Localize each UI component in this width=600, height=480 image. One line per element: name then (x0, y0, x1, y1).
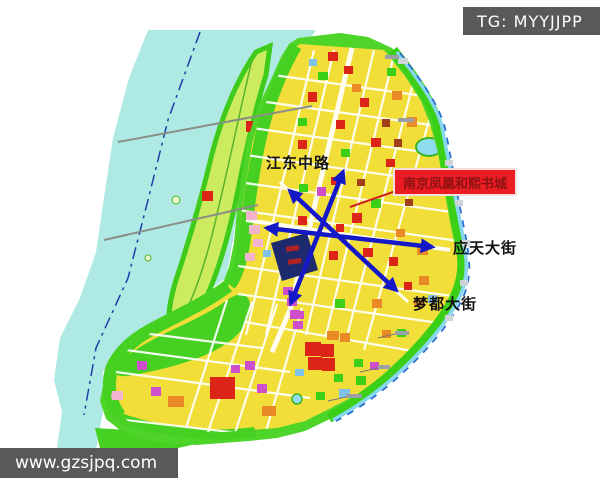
road-label-yingtian: 应天大街 (453, 241, 517, 256)
landmark-label-text: 南京凤凰和熙书城 (403, 173, 507, 192)
planning-map-screenshot: 江东中路 南京凤凰和熙书城 应天大街 梦都大街 TG: MYYJJPP www.… (0, 0, 600, 480)
road-label-jiangdong: 江东中路 (266, 156, 330, 171)
telegram-watermark-badge: TG: MYYJJPP (463, 7, 600, 35)
website-watermark: www.gzsjpq.com (0, 448, 178, 478)
landmark-label-box: 南京凤凰和熙书城 (393, 168, 517, 196)
road-label-mengdu: 梦都大街 (413, 297, 477, 312)
